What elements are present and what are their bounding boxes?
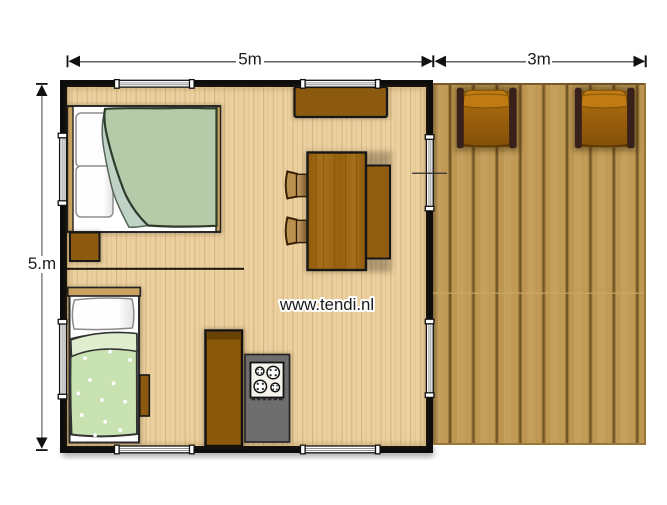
svg-text:3m: 3m <box>527 49 551 68</box>
svg-text:www.tendi.nl: www.tendi.nl <box>279 295 374 314</box>
svg-text:5m: 5m <box>238 49 262 68</box>
svg-text:5.m: 5.m <box>28 254 56 273</box>
